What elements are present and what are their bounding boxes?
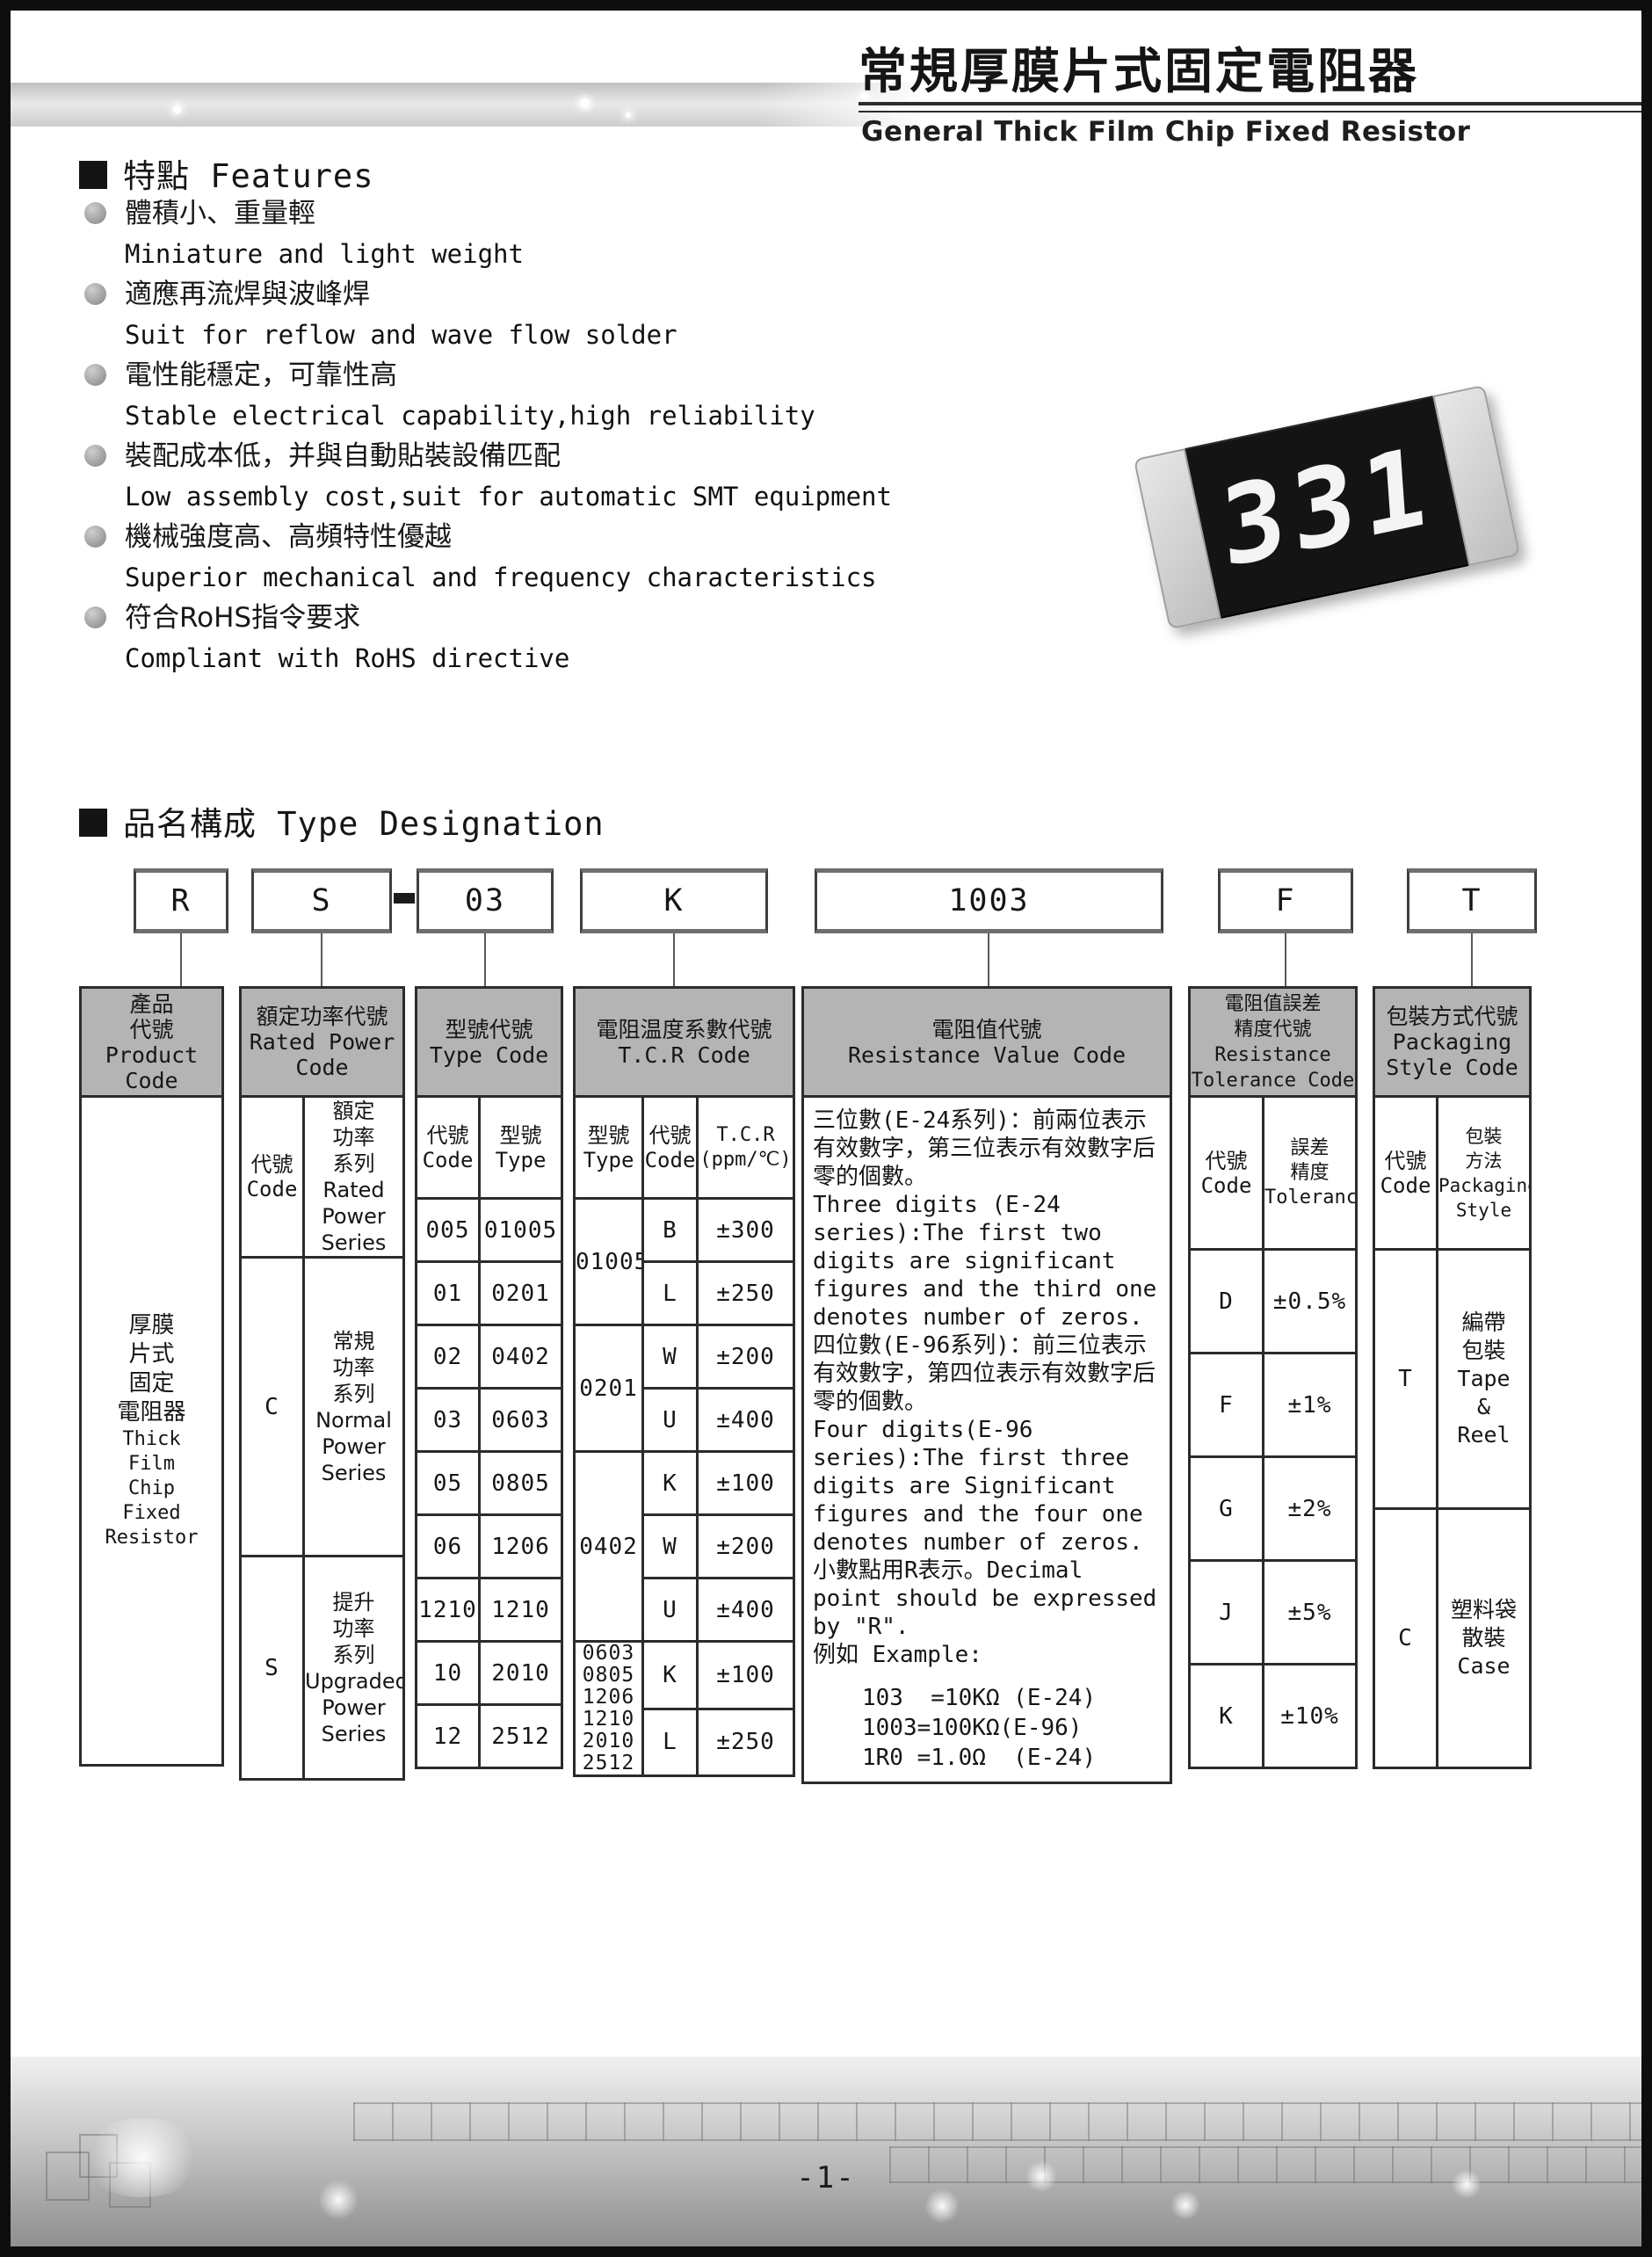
tcr-code-cell: U [643,1389,698,1452]
resistance-value-header: 電阻值代號 Resistance Value Code [803,988,1171,1097]
tcr-code-cell: L [643,1709,698,1776]
rv-paragraph-en: Three digits (E-24 series):The first two… [813,1191,1161,1332]
feature-item: 電性能穩定，可靠性高 Stable electrical capability,… [84,355,946,436]
section-square-icon [79,809,107,837]
feature-item: 體積小、重量輕 Miniature and light weight [84,193,946,274]
tcr-header: 電阻温度系數代號 T.C.R Code [575,988,794,1097]
bullet-dot-icon [84,364,106,386]
rv-example-label: 例如 Example: [813,1641,1161,1669]
footer-squares-strip [353,2102,1641,2141]
tolerance-value-cell: ±10% [1264,1665,1357,1768]
code-box-packaging: T [1407,868,1537,933]
datasheet-page: 常規厚膜片式固定電阻器 General Thick Film Chip Fixe… [0,0,1652,2257]
connector-line [1285,933,1286,986]
connector-line [180,933,182,986]
tolerance-column: 電阻值誤差 精度代號 Resistance Tolerance Code 代號 … [1188,986,1358,1769]
tcr-type-group: 0603 0805 1206 1210 2010 2512 [575,1642,643,1776]
product-code-value: 厚膜 片式 固定 電阻器 Thick Film Chip Fixed Resis… [81,1097,223,1766]
rated-power-code: S [241,1557,304,1780]
feature-text-cn: 體積小、重量輕 [125,193,946,234]
bullet-dot-icon [84,445,106,467]
tolerance-value-cell: ±2% [1264,1457,1357,1561]
type-code-column: 型號代號 Type Code 代號 Code 型號 Type 00501005 … [415,986,563,1769]
feature-text-cn: 適應再流焊與波峰焊 [125,274,946,315]
packaging-col-code: 代號 Code [1374,1097,1438,1250]
title-underline [859,102,1641,112]
type-designation-heading: 品名構成 Type Designation [79,797,605,845]
tolerance-code-cell: K [1190,1665,1264,1768]
feature-item: 機械強度高、高頻特性優越 Superior mechanical and fre… [84,517,946,598]
tcr-type-group: 0402 [575,1452,643,1642]
tcr-code-cell: W [643,1325,698,1389]
product-code-header: 產品 代號 Product Code [81,988,223,1097]
feature-text-en: Compliant with RoHS directive [125,638,946,679]
resistance-value-body: 三位數(E-24系列)：前兩位表示有效數字，第三位表示有效數字后零的個數。 Th… [803,1097,1171,1783]
bullet-dot-icon [84,526,106,548]
tolerance-code-cell: F [1190,1353,1264,1457]
tcr-col-code: 代號 Code [643,1097,698,1199]
tcr-code-cell: B [643,1199,698,1262]
tcr-value-cell: ±400 [698,1389,794,1452]
chip-marking: 331 [1218,431,1436,584]
product-code-value-en: Thick Film Chip Fixed Resistor [82,1427,221,1550]
type-size-cell: 1210 [480,1578,562,1642]
type-code-cell: 10 [417,1642,480,1705]
feature-item: 適應再流焊與波峰焊 Suit for reflow and wave flow … [84,274,946,355]
product-code-value-cn: 厚膜 片式 固定 電阻器 [82,1311,221,1427]
rv-paragraph-cn: 三位數(E-24系列)：前兩位表示有效數字，第三位表示有效數字后零的個數。 [813,1107,1161,1191]
tcr-code-cell: L [643,1262,698,1325]
tcr-value-cell: ±200 [698,1325,794,1389]
feature-text-en: Superior mechanical and frequency charac… [125,557,946,598]
type-size-cell: 0805 [480,1452,562,1515]
feature-text-cn: 裝配成本低，并與自動貼裝設備匹配 [125,436,946,476]
connector-line [321,933,322,986]
code-box-type: 03 [417,868,554,933]
code-box-tcr: K [580,868,768,933]
type-size-cell: 1206 [480,1515,562,1578]
code-box-power: S [251,868,392,933]
type-code-col-type: 型號 Type [480,1097,562,1199]
tcr-value-cell: ±300 [698,1199,794,1262]
tcr-value-cell: ±100 [698,1452,794,1515]
rv-paragraph-cn: 四位數(E-96系列)：前三位表示有效數字，第四位表示有效數字后零的個數。 [813,1332,1161,1416]
packaging-style-cell: 塑料袋 散裝 Case [1438,1509,1531,1768]
bullet-dot-icon [84,606,106,628]
bullet-dot-icon [84,202,106,224]
rated-power-column: 額定功率代號 Rated Power Code 代號 Code 額定 功率 系列… [239,986,405,1781]
connector-line [988,933,989,986]
tcr-code-cell: U [643,1578,698,1642]
code-separator-dash [394,893,415,904]
sparkle-decoration [626,112,631,118]
packaging-header: 包裝方式代號 Packaging Style Code [1374,988,1531,1097]
tolerance-code-cell: J [1190,1561,1264,1665]
sparkle-decoration [580,98,590,108]
tcr-code-cell: W [643,1515,698,1578]
sparkle-decoration [173,105,181,113]
type-size-cell: 01005 [480,1199,562,1262]
header-gradient-band [11,83,920,127]
page-number: -1- [11,2160,1641,2195]
rv-example-line: 103 =10KΩ (E-24) [862,1683,1161,1713]
packaging-col-style: 包裝 方法 Packaging Style [1438,1097,1531,1250]
chip-resistor: 331 [1134,385,1520,630]
type-code-header: 型號代號 Type Code [417,988,562,1097]
feature-text-en: Suit for reflow and wave flow solder [125,315,946,355]
feature-item: 符合RoHS指令要求 Compliant with RoHS directive [84,598,946,679]
tcr-code-column: 電阻温度系數代號 T.C.R Code 型號 Type 代號 Code T.C.… [573,986,795,1777]
rv-example-line: 1003=100KΩ(E-96) [862,1713,1161,1743]
tcr-code-cell: K [643,1452,698,1515]
packaging-code-cell: T [1374,1250,1438,1509]
type-code-col-code: 代號 Code [417,1097,480,1199]
tcr-value-cell: ±100 [698,1642,794,1709]
type-code-cell: 02 [417,1325,480,1389]
resistance-value-column: 電阻值代號 Resistance Value Code 三位數(E-24系列)：… [801,986,1172,1784]
code-box-product: R [134,868,228,933]
rated-power-series: 常規 功率 系列 Normal Power Series [304,1258,404,1557]
feature-item: 裝配成本低，并與自動貼裝設備匹配 Low assembly cost,suit … [84,436,946,517]
tcr-col-type: 型號 Type [575,1097,643,1199]
chip-body: 331 [1185,396,1469,619]
tolerance-col-tol: 誤差 精度 Tolerance [1264,1097,1357,1250]
feature-text-cn: 符合RoHS指令要求 [125,598,946,638]
type-code-cell: 005 [417,1199,480,1262]
feature-text-cn: 電性能穩定，可靠性高 [125,355,946,396]
feature-text-cn: 機械強度高、高頻特性優越 [125,517,946,557]
tolerance-code-cell: D [1190,1250,1264,1353]
footer-gradient-band: -1- [11,2057,1641,2246]
packaging-style-cell: 編帶 包裝 Tape & Reel [1438,1250,1531,1509]
type-size-cell: 0402 [480,1325,562,1389]
connector-line [1471,933,1473,986]
code-box-tolerance: F [1218,868,1353,933]
type-size-cell: 0603 [480,1389,562,1452]
feature-text-en: Stable electrical capability,high reliab… [125,396,946,436]
product-code-column: 產品 代號 Product Code 厚膜 片式 固定 電阻器 Thick Fi… [79,986,224,1767]
features-heading: 特點 Features [79,149,373,197]
type-code-cell: 1210 [417,1578,480,1642]
type-size-cell: 2512 [480,1705,562,1768]
page-title-english: General Thick Film Chip Fixed Resistor [861,116,1652,148]
page-title-chinese: 常規厚膜片式固定電阻器 [859,44,1649,98]
tcr-value-cell: ±250 [698,1709,794,1776]
rated-power-series: 提升 功率 系列 Upgraded Power Series [304,1557,404,1780]
tcr-type-group: 01005 [575,1199,643,1325]
type-code-cell: 05 [417,1452,480,1515]
tolerance-value-cell: ±1% [1264,1353,1357,1457]
type-code-cell: 06 [417,1515,480,1578]
tolerance-col-code: 代號 Code [1190,1097,1264,1250]
tcr-type-group: 0201 [575,1325,643,1452]
chip-resistor-photo: 331 [1137,404,1524,624]
feature-text-en: Miniature and light weight [125,234,946,274]
tcr-value-cell: ±200 [698,1515,794,1578]
packaging-code-cell: C [1374,1509,1438,1768]
rated-power-col-series: 額定 功率 系列 Rated Power Series [304,1097,404,1258]
code-box-resistance: 1003 [815,868,1163,933]
rv-paragraph-decimal: 小數點用R表示。Decimal point should be expresse… [813,1557,1161,1641]
type-size-cell: 0201 [480,1262,562,1325]
type-size-cell: 2010 [480,1642,562,1705]
tcr-col-tcr: T.C.R (ppm/℃) [698,1097,794,1199]
features-list: 體積小、重量輕 Miniature and light weight 適應再流焊… [84,193,946,679]
packaging-column: 包裝方式代號 Packaging Style Code 代號 Code 包裝 方… [1373,986,1532,1769]
type-code-cell: 01 [417,1262,480,1325]
rated-power-code: C [241,1258,304,1557]
section-square-icon [79,161,107,189]
feature-text-en: Low assembly cost,suit for automatic SMT… [125,476,946,517]
type-code-cell: 12 [417,1705,480,1768]
type-code-cell: 03 [417,1389,480,1452]
rated-power-col-code: 代號 Code [241,1097,304,1258]
tolerance-code-cell: G [1190,1457,1264,1561]
tolerance-header: 電阻值誤差 精度代號 Resistance Tolerance Code [1190,988,1357,1097]
rv-paragraph-en: Four digits(E-96 series):The first three… [813,1416,1161,1557]
connector-line [484,933,486,986]
tcr-value-cell: ±250 [698,1262,794,1325]
connector-line [673,933,675,986]
tolerance-value-cell: ±5% [1264,1561,1357,1665]
tcr-value-cell: ±400 [698,1578,794,1642]
rv-example-line: 1R0 =1.0Ω (E-24) [862,1743,1161,1773]
bullet-dot-icon [84,283,106,305]
tcr-code-cell: K [643,1642,698,1709]
rated-power-header: 額定功率代號 Rated Power Code [241,988,404,1097]
tolerance-value-cell: ±0.5% [1264,1250,1357,1353]
